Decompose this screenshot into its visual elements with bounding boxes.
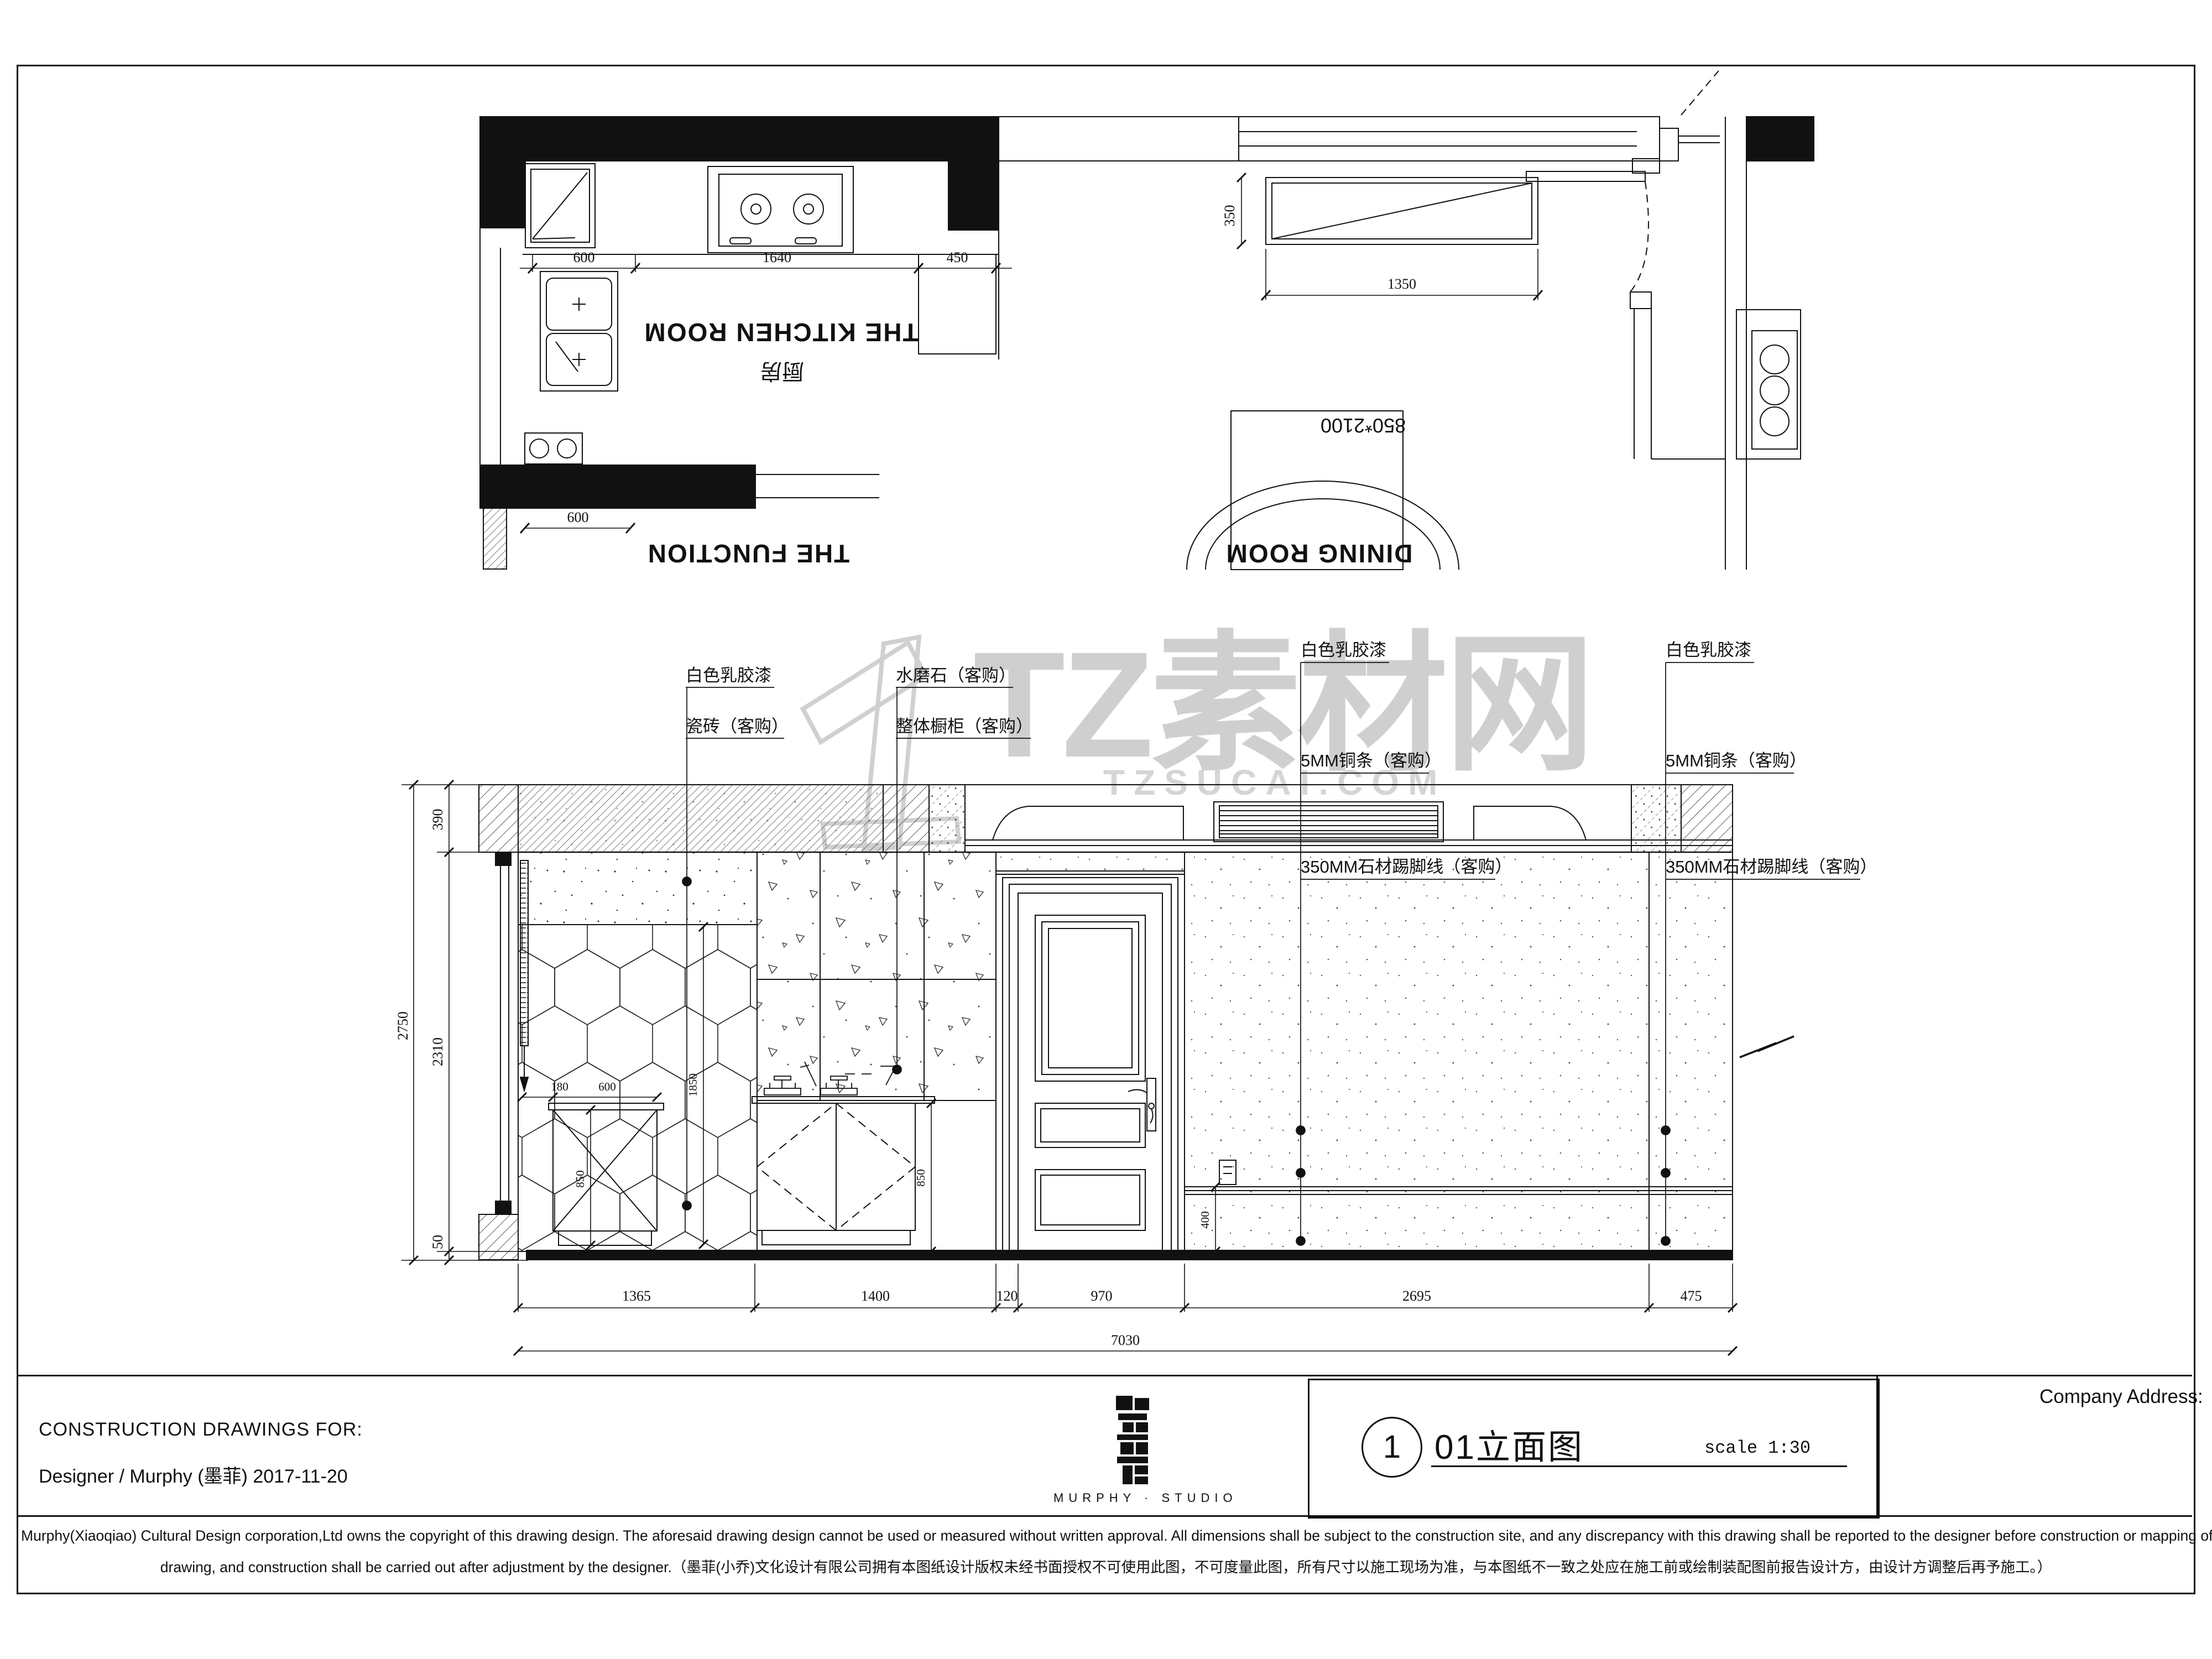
dim-1400: 1400 [861,1288,890,1304]
sheet-number-circle: 1 [1361,1417,1422,1478]
elev-stardust-band [518,852,757,925]
label-cabinet: 整体橱柜（客购） [896,717,1033,736]
plan-label-dining: DINING ROOM [1225,539,1413,568]
break-line-icon [1740,1036,1794,1057]
dim-180: 180 [551,1080,568,1093]
company-address-label: Company Address: [2039,1386,2203,1408]
elev-vent-grille-icon [1214,802,1443,842]
murphy-studio-seal-icon [1106,1395,1161,1488]
dim-600-cabinet: 600 [598,1080,616,1093]
disclaimer-line-1: Murphy(Xiaoqiao) Cultural Design corpora… [21,1527,2191,1545]
studio-caption: MURPHY · STUDIO [1053,1491,1214,1505]
elev-door [996,871,1185,1251]
elev-cabinet-right [752,1097,935,1245]
label-white-latex-mid: 白色乳胶漆 [1301,640,1386,660]
dim-850-left: 850 [573,1170,587,1188]
dim-2750: 2750 [395,1011,411,1040]
dim-1365: 1365 [622,1288,651,1304]
plan-dim-1640: 1640 [763,249,791,265]
dim-475: 475 [1681,1288,1702,1304]
plan-wall-top-left [480,117,999,161]
dim-400: 400 [1198,1211,1212,1229]
label-white-latex-left: 白色乳胶漆 [686,666,771,685]
plan-wall-bottom [480,465,755,508]
door-handle-icon [1128,1078,1156,1131]
label-skirting-mid: 350MM石材踢脚线（客购） [1301,857,1512,877]
designer-date-label: Designer / Murphy (墨菲) 2017-11-20 [39,1461,348,1488]
plan-cooktop-icon [708,166,853,253]
label-terrazzo: 水磨石（客购） [896,666,1016,685]
label-white-latex-right: 白色乳胶漆 [1666,640,1751,660]
elev-terrazzo-tiles [757,852,996,1100]
label-copper-strip-mid: 5MM铜条（客购） [1301,751,1442,770]
drawing-title: 01立面图 [1434,1419,1584,1469]
plan-label-door-size: 850*2100 [1321,414,1406,437]
plan-window-left-icon [525,164,595,248]
plan-dim-450: 450 [947,249,968,265]
elev-wallpaper [1185,852,1733,1251]
title-band-top-line [17,1375,2192,1376]
label-tile: 瓷砖（客购） [686,717,789,736]
plan-dim-600-top: 600 [573,249,595,265]
dim-390: 390 [430,809,446,831]
dim-50: 50 [430,1235,446,1249]
elev-cornice [965,785,1733,852]
floor-plan: 600 1640 450 600 350 1350 THE KITCHEN RO… [480,71,1814,570]
dim-120: 120 [997,1288,1018,1304]
elevation: 白色乳胶漆 瓷砖（客购） 水磨石（客购） 整体橱柜（客购） 白色乳胶漆 5MM铜… [395,640,1877,1355]
scale-label: scale 1:30 [1704,1438,1811,1458]
plan-label-kitchen: THE KITCHEN ROOM [643,318,918,347]
construction-for-label: CONSTRUCTION DRAWINGS FOR: [39,1419,363,1441]
plan-dim-1350: 1350 [1387,276,1416,292]
dim-970: 970 [1091,1288,1113,1304]
plan-dim-350: 350 [1222,205,1238,227]
dim-1850: 1850 [686,1073,700,1097]
plan-wall-left-block [480,161,525,228]
plan-label-function: THE FUNCTION [647,539,849,568]
disclaimer-line-2: drawing, and construction shall be carri… [21,1555,2191,1577]
plan-label-kitchen-cn: 厨房 [760,359,804,383]
label-copper-strip-right: 5MM铜条（客购） [1666,751,1807,770]
label-skirting-right: 350MM石材踢脚线（客购） [1666,857,1877,877]
plan-wall-leg [948,161,999,230]
plan-door-strip [483,508,507,569]
dim-2310: 2310 [430,1037,446,1066]
dim-7030: 7030 [1111,1332,1140,1348]
plan-dim-600-bottom: 600 [567,509,589,525]
drawing-sheet: TZ素材网 TZSUCAI.COM [0,0,2212,1659]
plan-burner-icon [525,433,582,464]
plan-sink-icon [540,272,618,391]
drawing-title-underline [1431,1465,1847,1467]
dim-850-right: 850 [914,1169,927,1187]
dim-2695: 2695 [1402,1288,1431,1304]
plan-dining-window-icon [1266,178,1538,244]
